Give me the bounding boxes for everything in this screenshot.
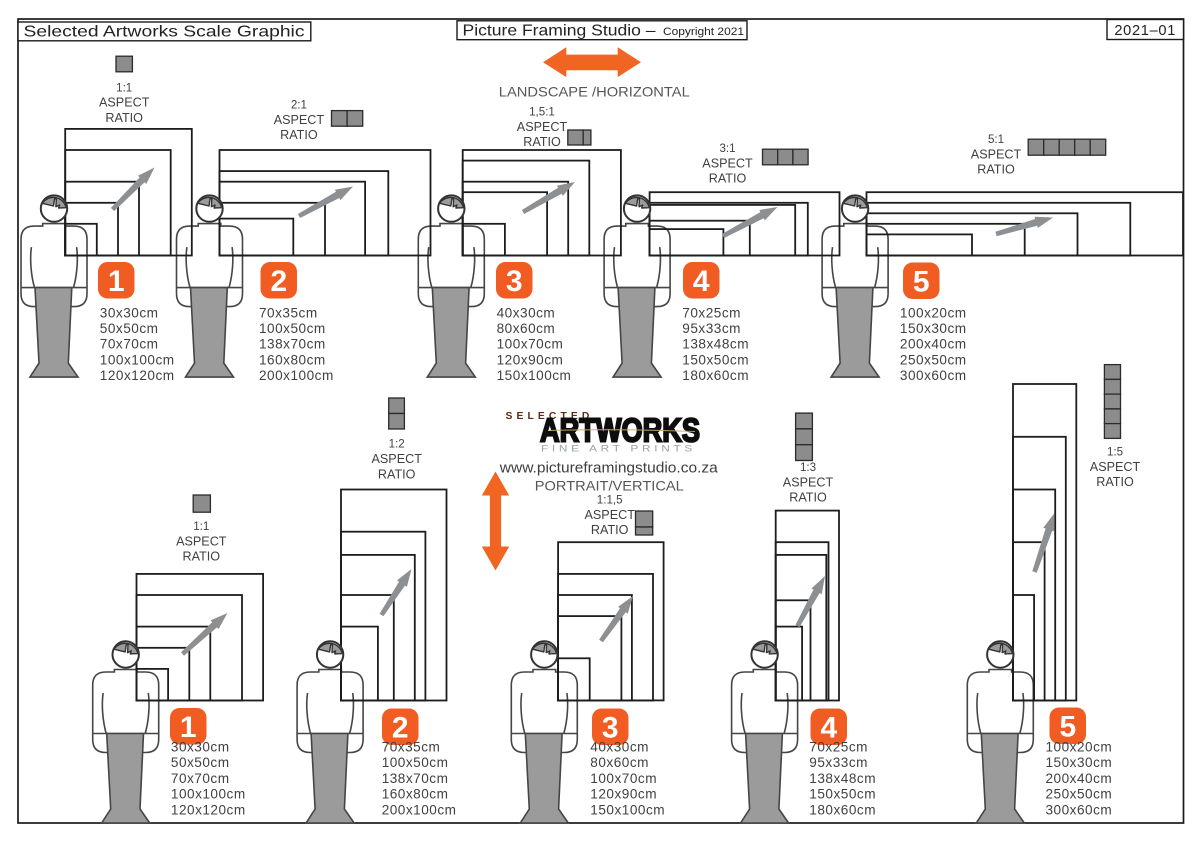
svg-text:ASPECT: ASPECT [274,113,325,127]
svg-text:150x100cm: 150x100cm [497,368,572,383]
svg-text:1:1,5: 1:1,5 [597,494,623,507]
svg-text:138x48cm: 138x48cm [809,771,876,786]
svg-text:5: 5 [913,266,930,299]
svg-text:138x48cm: 138x48cm [682,337,749,352]
svg-text:30x30cm: 30x30cm [171,740,230,755]
svg-text:ASPECT: ASPECT [372,452,423,466]
svg-text:120x90cm: 120x90cm [497,353,564,368]
svg-text:1: 1 [108,265,125,298]
svg-text:3:1: 3:1 [719,142,735,155]
svg-text:300x60cm: 300x60cm [1046,802,1113,817]
svg-text:70x35cm: 70x35cm [259,305,318,320]
svg-text:300x60cm: 300x60cm [900,368,967,383]
svg-text:120x90cm: 120x90cm [590,787,657,802]
svg-text:5:1: 5:1 [988,133,1004,146]
svg-text:40x30cm: 40x30cm [497,305,556,320]
svg-text:RATIO: RATIO [977,163,1015,177]
svg-text:150x30cm: 150x30cm [900,321,967,336]
svg-text:2021–01: 2021–01 [1114,23,1176,39]
svg-text:Copyright 2021: Copyright 2021 [663,26,744,38]
svg-text:100x50cm: 100x50cm [259,321,326,336]
svg-text:200x100cm: 200x100cm [259,368,334,383]
svg-text:RATIO: RATIO [789,491,827,505]
svg-text:150x50cm: 150x50cm [809,787,876,802]
svg-text:160x80cm: 160x80cm [259,353,326,368]
svg-text:50x50cm: 50x50cm [100,321,159,336]
svg-text:160x80cm: 160x80cm [382,787,449,802]
svg-text:4: 4 [693,265,710,298]
svg-text:ASPECT: ASPECT [585,508,636,522]
svg-text:80x60cm: 80x60cm [590,755,649,770]
svg-text:ASPECT: ASPECT [783,475,834,489]
svg-text:1:1: 1:1 [193,520,209,533]
svg-text:200x40cm: 200x40cm [900,337,967,352]
svg-text:FINE ART PRINTS: FINE ART PRINTS [541,444,696,455]
svg-text:1:5: 1:5 [1107,446,1123,459]
svg-text:50x50cm: 50x50cm [171,755,230,770]
svg-text:200x40cm: 200x40cm [1046,771,1113,786]
svg-text:Selected Artworks Scale Graphi: Selected Artworks Scale Graphic [24,24,305,41]
svg-text:70x35cm: 70x35cm [382,740,441,755]
svg-text:100x20cm: 100x20cm [1046,740,1113,755]
svg-text:ASPECT: ASPECT [971,147,1022,161]
svg-text:150x50cm: 150x50cm [682,353,749,368]
svg-text:RATIO: RATIO [709,172,747,186]
svg-text:95x33cm: 95x33cm [809,755,868,770]
svg-text:RATIO: RATIO [523,135,561,149]
svg-text:250x50cm: 250x50cm [1046,787,1113,802]
svg-text:LANDSCAPE /HORIZONTAL: LANDSCAPE /HORIZONTAL [499,85,690,100]
svg-text:100x100cm: 100x100cm [100,353,175,368]
svg-text:138x70cm: 138x70cm [259,337,326,352]
svg-text:120x120cm: 120x120cm [100,368,175,383]
svg-text:100x50cm: 100x50cm [382,755,449,770]
svg-text:138x70cm: 138x70cm [382,771,449,786]
svg-text:70x70cm: 70x70cm [100,337,159,352]
svg-text:120x120cm: 120x120cm [171,802,246,817]
svg-text:1:1: 1:1 [116,81,132,94]
svg-text:30x30cm: 30x30cm [100,305,159,320]
svg-text:70x25cm: 70x25cm [809,740,868,755]
svg-text:150x30cm: 150x30cm [1046,755,1113,770]
svg-text:PORTRAIT/VERTICAL: PORTRAIT/VERTICAL [535,479,684,494]
svg-text:Picture Framing Studio –: Picture Framing Studio – [463,22,656,39]
svg-text:250x50cm: 250x50cm [900,353,967,368]
svg-text:70x70cm: 70x70cm [171,771,230,786]
svg-text:180x60cm: 180x60cm [682,368,749,383]
svg-text:70x25cm: 70x25cm [682,305,741,320]
svg-text:RATIO: RATIO [280,128,318,142]
svg-text:ASPECT: ASPECT [99,96,150,110]
svg-text:1:2: 1:2 [389,438,405,451]
svg-text:150x100cm: 150x100cm [590,802,665,817]
svg-text:ASPECT: ASPECT [1090,460,1141,474]
svg-text:3: 3 [506,265,523,298]
svg-text:2:1: 2:1 [291,99,307,112]
svg-text:80x60cm: 80x60cm [497,321,556,336]
svg-text:40x30cm: 40x30cm [590,740,649,755]
svg-text:100x100cm: 100x100cm [171,787,246,802]
svg-text:100x70cm: 100x70cm [497,337,564,352]
svg-text:www.pictureframingstudio.co.za: www.pictureframingstudio.co.za [499,461,719,477]
svg-text:RATIO: RATIO [591,523,629,537]
svg-text:ASPECT: ASPECT [176,534,227,548]
svg-text:RATIO: RATIO [183,550,221,564]
svg-text:100x20cm: 100x20cm [900,305,967,320]
svg-text:ASPECT: ASPECT [517,120,568,134]
svg-text:RATIO: RATIO [105,111,143,125]
svg-text:ASPECT: ASPECT [702,156,753,170]
svg-text:2: 2 [270,265,287,298]
svg-text:180x60cm: 180x60cm [809,802,876,817]
svg-text:1:3: 1:3 [800,461,816,474]
svg-text:200x100cm: 200x100cm [382,802,457,817]
svg-text:1,5:1: 1,5:1 [529,106,555,119]
svg-text:RATIO: RATIO [1096,475,1134,489]
svg-text:100x70cm: 100x70cm [590,771,657,786]
svg-text:RATIO: RATIO [378,467,416,481]
svg-text:95x33cm: 95x33cm [682,321,741,336]
